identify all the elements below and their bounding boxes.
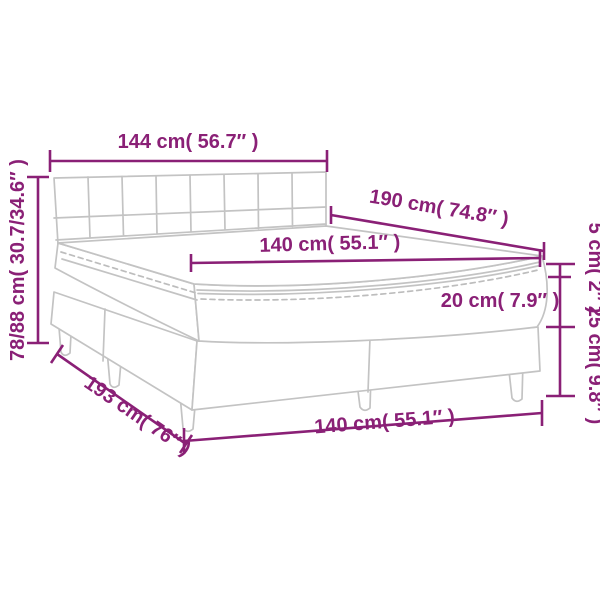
dim-right-heights: 5 cm( 2″ ) 25 cm( 9.8″ ) [546, 223, 600, 425]
dim-headboard-width: 144 cm( 56.7″ ) [50, 131, 327, 172]
dim-total-height-label: 78/88 cm( 30.7/34.6″ ) [7, 159, 29, 361]
dim-mattress-width-top-label: 140 cm( 55.1″ ) [259, 231, 400, 257]
dim-base-height-label: 25 cm( 9.8″ ) [584, 306, 600, 425]
dim-topper-height-label: 5 cm( 2″ ) [584, 223, 600, 314]
bed-dimension-diagram: 144 cm( 56.7″ ) 78/88 cm( 30.7/34.6″ ) 1… [0, 0, 600, 600]
dim-bed-width-bottom-label: 140 cm( 55.1″ ) [313, 406, 455, 439]
dim-total-height-line [27, 177, 49, 343]
diagram-svg: 144 cm( 56.7″ ) 78/88 cm( 30.7/34.6″ ) 1… [0, 0, 600, 600]
dim-mattress-height-label: 20 cm( 7.9″ ) [441, 290, 560, 312]
dim-headboard-width-label: 144 cm( 56.7″ ) [118, 131, 259, 153]
dim-right-heights-line [546, 264, 575, 396]
dim-total-height: 78/88 cm( 30.7/34.6″ ) [7, 159, 49, 361]
dim-headboard-width-line [50, 150, 327, 172]
